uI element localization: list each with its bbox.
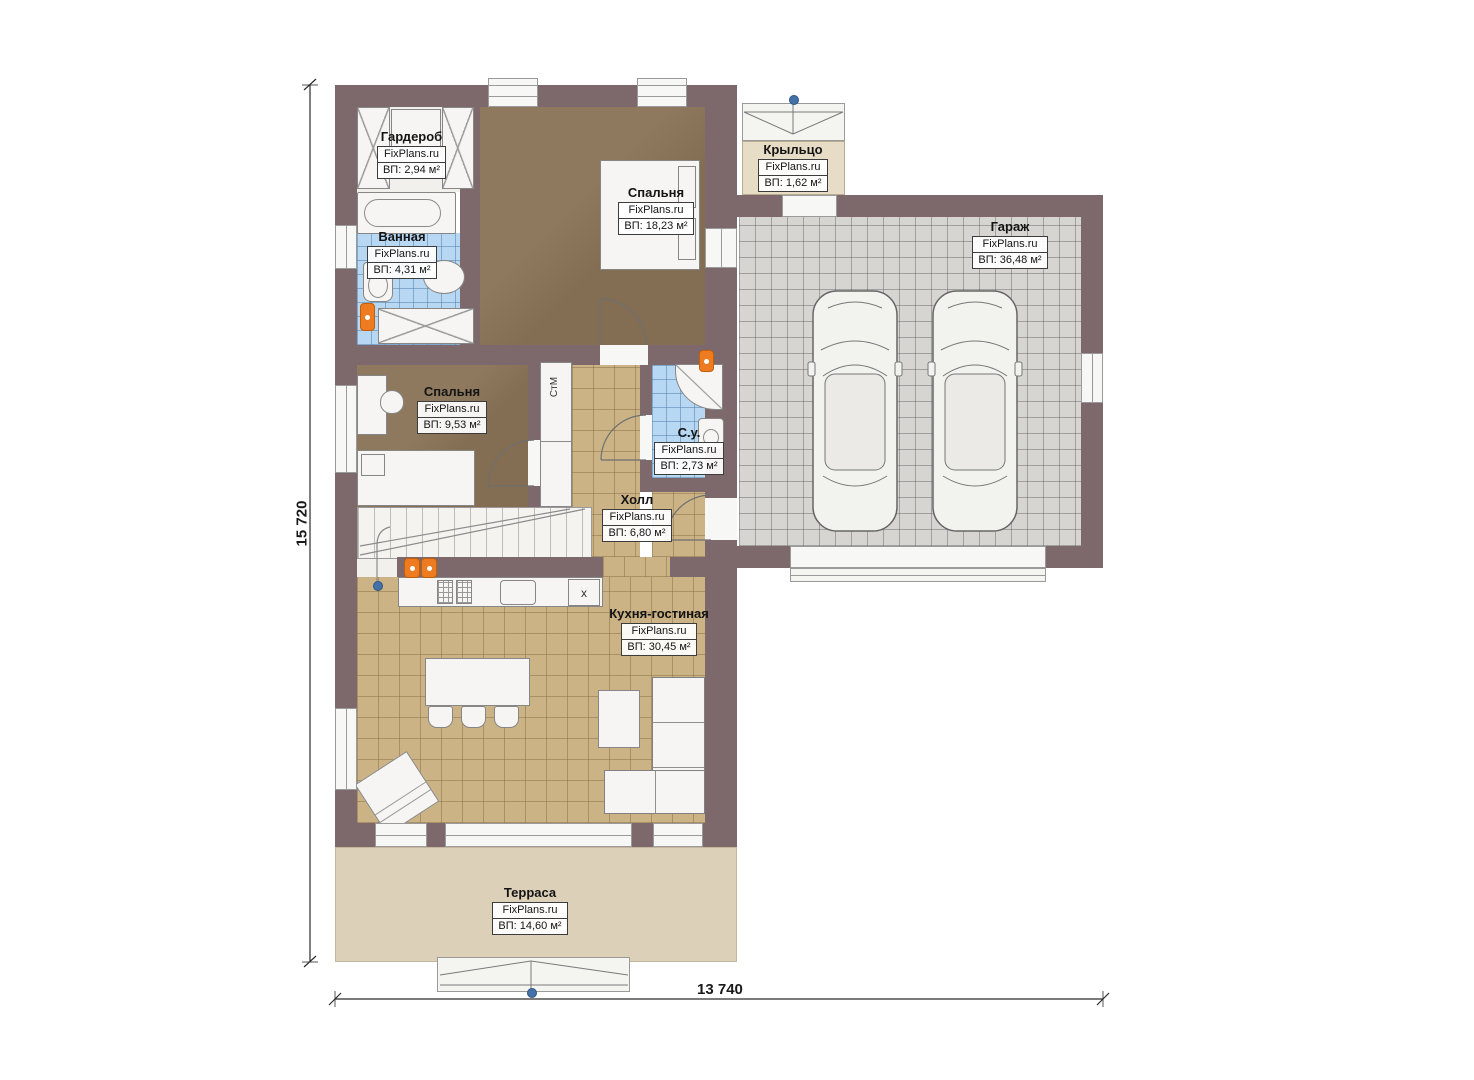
- window-left-kitchen: [335, 708, 357, 790]
- room-area: ВП: 30,45 м²: [622, 640, 695, 655]
- dimension-height: 15 720: [294, 484, 311, 564]
- room-label-garage: Гараж FixPlans.ruВП: 36,48 м²: [960, 220, 1060, 269]
- brand-link: FixPlans.ru: [973, 237, 1046, 253]
- room-name: Гардероб: [374, 130, 449, 144]
- room-area: ВП: 18,23 м²: [619, 219, 692, 234]
- floor-plan: СтМ х: [0, 0, 1474, 1080]
- room-name: Холл: [597, 493, 677, 507]
- room-label-terrace: Терраса FixPlans.ruВП: 14,60 м²: [486, 886, 574, 935]
- dining-chair-3: [494, 706, 519, 728]
- kitchen-sink: [500, 580, 536, 605]
- window-garage-right: [1081, 353, 1103, 403]
- brand-link: FixPlans.ru: [368, 247, 435, 263]
- brand-link: FixPlans.ru: [603, 510, 670, 526]
- window-left-bath: [335, 225, 357, 269]
- staircase: [357, 507, 592, 559]
- brand-link: FixPlans.ru: [655, 443, 722, 459]
- brand-link: FixPlans.ru: [418, 402, 485, 418]
- room-area: ВП: 4,31 м²: [368, 263, 435, 278]
- radiator-icon: [421, 558, 437, 578]
- window-bedroom1-right: [705, 228, 737, 268]
- door-opening-bedroom2: [528, 440, 540, 486]
- door-terrace-glazed: [445, 823, 632, 847]
- coffee-table: [598, 690, 640, 748]
- room-label-wardrobe: Гардероб FixPlans.ruВП: 2,94 м²: [374, 130, 449, 179]
- garage-gate-opening: [790, 546, 1046, 568]
- room-area: ВП: 1,62 м²: [759, 176, 826, 191]
- radiator-icon: [360, 303, 375, 331]
- stove-2: [456, 580, 472, 604]
- window-left-bedroom2: [335, 385, 357, 473]
- room-area: ВП: 14,60 м²: [493, 919, 566, 934]
- room-label-hall: Холл FixPlans.ruВП: 6,80 м²: [597, 493, 677, 542]
- dimension-width: 13 740: [697, 981, 743, 998]
- radiator-icon: [404, 558, 420, 578]
- garage-gate-apron: [790, 568, 1046, 582]
- porch-canopy: [742, 103, 845, 141]
- brand-link: FixPlans.ru: [378, 147, 445, 163]
- window-terrace-2: [653, 823, 703, 847]
- window-top-2: [637, 85, 687, 107]
- room-label-kitchen: Кухня-гостиная FixPlans.ruВП: 30,45 м²: [608, 607, 710, 656]
- bed-2-pillow: [361, 454, 385, 476]
- room-area: ВП: 2,73 м²: [655, 459, 722, 474]
- door-opening-bedroom1: [600, 345, 648, 365]
- terrace-steps: [437, 957, 630, 992]
- wall-kitchen-top-2: [670, 557, 705, 577]
- marker-dot-steps: [527, 988, 537, 998]
- wall-wc-bottom: [640, 478, 737, 492]
- room-label-wc: С.у. FixPlans.ruВП: 2,73 м²: [644, 426, 734, 475]
- floor-hall-pass: [603, 557, 670, 577]
- dishwasher: х: [568, 579, 600, 606]
- room-name: Ванная: [363, 230, 441, 244]
- dining-chair-2: [461, 706, 486, 728]
- room-area: ВП: 2,94 м²: [378, 163, 445, 178]
- window-top-2-sill: [637, 78, 687, 86]
- window-terrace-1: [375, 823, 427, 847]
- room-area: ВП: 9,53 м²: [418, 418, 485, 433]
- bathtub: [357, 192, 456, 234]
- room-area: ВП: 6,80 м²: [603, 526, 670, 541]
- room-name: Кухня-гостиная: [608, 607, 710, 621]
- room-name: Гараж: [960, 220, 1060, 234]
- marker-dot-stairs: [373, 581, 383, 591]
- brand-link: FixPlans.ru: [619, 203, 692, 219]
- radiator-icon: [699, 350, 714, 372]
- washing-machine-label: СтМ: [549, 371, 563, 403]
- desk-chair: [380, 390, 404, 414]
- room-name: Спальня: [412, 385, 492, 399]
- door-opening-entrance: [782, 195, 837, 217]
- stove: [437, 580, 453, 604]
- room-name: Терраса: [486, 886, 574, 900]
- room-name: С.у.: [644, 426, 734, 440]
- room-label-bedroom-2: Спальня FixPlans.ruВП: 9,53 м²: [412, 385, 492, 434]
- sofa-horizontal: [604, 770, 705, 814]
- dining-chair-1: [428, 706, 453, 728]
- room-name: Спальня: [610, 186, 702, 200]
- door-opening-garage: [705, 498, 737, 540]
- room-name: Крыльцо: [752, 143, 834, 157]
- dishwasher-mark: х: [581, 586, 587, 600]
- marker-dot-porch: [789, 95, 799, 105]
- room-label-bathroom: Ванная FixPlans.ruВП: 4,31 м²: [363, 230, 441, 279]
- window-top-1: [488, 85, 538, 107]
- closet-hall: [378, 308, 474, 344]
- room-area: ВП: 36,48 м²: [973, 253, 1046, 268]
- room-label-porch: Крыльцо FixPlans.ruВП: 1,62 м²: [752, 143, 834, 192]
- floor-stairs-landing: [357, 557, 397, 577]
- brand-link: FixPlans.ru: [622, 624, 695, 640]
- brand-link: FixPlans.ru: [493, 903, 566, 919]
- room-label-bedroom-1: Спальня FixPlans.ruВП: 18,23 м²: [610, 186, 702, 235]
- dining-table: [425, 658, 530, 706]
- plan-linework: [0, 0, 1474, 1080]
- brand-link: FixPlans.ru: [759, 160, 826, 176]
- window-top-1-sill: [488, 78, 538, 86]
- wall-divider-middle: [335, 345, 737, 365]
